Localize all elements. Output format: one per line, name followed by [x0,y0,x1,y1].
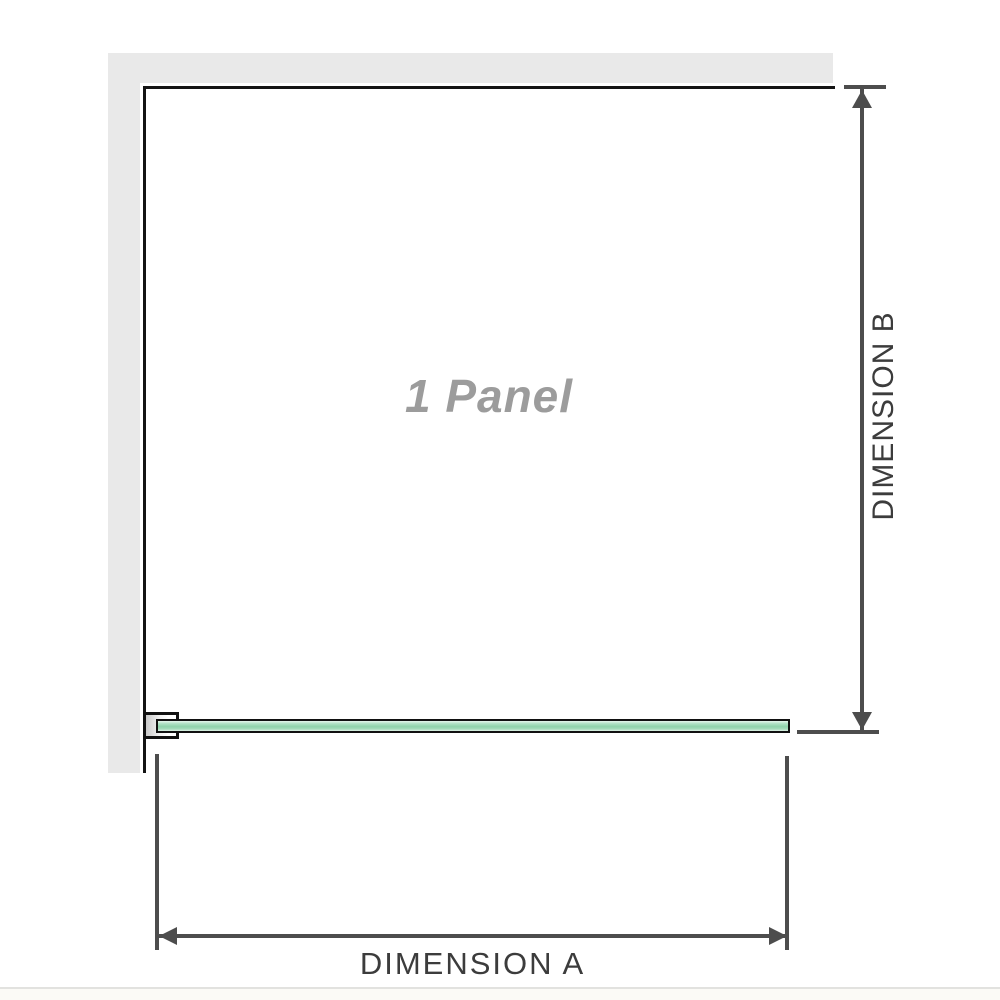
enclosure-border-left [143,86,146,773]
shower-panel-diagram: 1 Panel DIMENSION B DIMENSION A [0,0,1000,1000]
wall-top [108,53,833,83]
page-bottom-strip [0,989,1000,1000]
glass-panel [156,719,790,733]
arrow-down-icon [852,712,872,730]
dimension-a-extension-left [155,754,159,950]
dimension-a-label: DIMENSION A [157,946,788,982]
dimension-b-line [860,88,864,732]
arrow-left-icon [159,927,177,945]
dimension-b-top-tick [844,85,886,89]
enclosure-border-top [143,86,835,89]
dimension-b-label: DIMENSION B [867,311,901,520]
wall-left [108,53,140,773]
arrow-up-icon [852,90,872,108]
dimension-a-extension-right [785,756,789,950]
dimension-b-bottom-tick [797,730,879,734]
dimension-a-line [157,934,788,938]
panel-count-label: 1 Panel [143,369,835,423]
arrow-right-icon [769,927,787,945]
